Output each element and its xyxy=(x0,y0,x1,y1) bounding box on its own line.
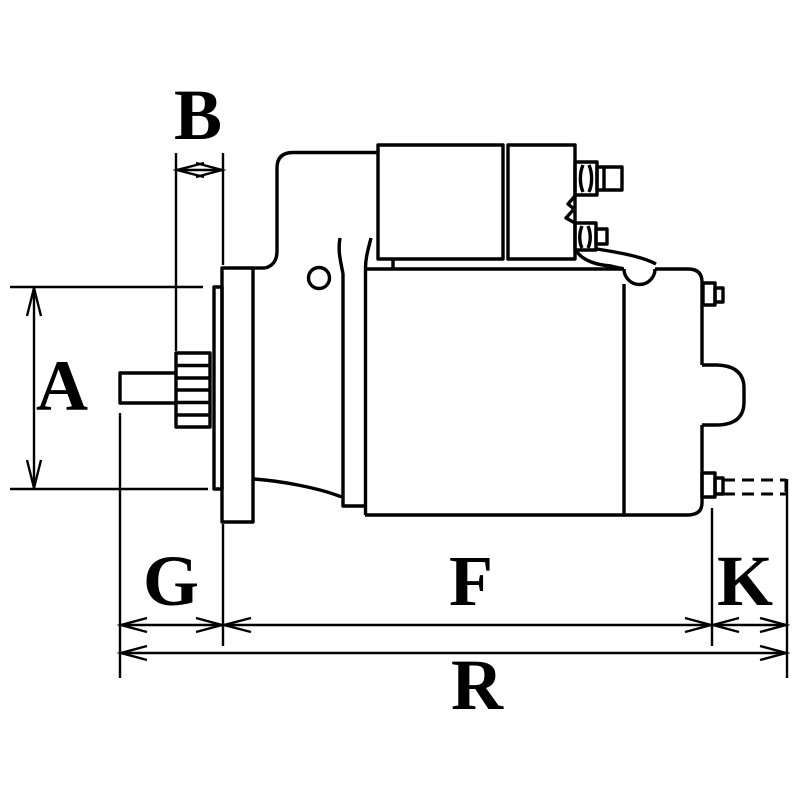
dimension-label-A: A xyxy=(36,346,88,426)
solenoid xyxy=(378,145,575,269)
starter-motor-dimension-diagram: A B G xyxy=(0,0,800,800)
starter-motor-outline xyxy=(120,145,786,522)
rear-bearing-boss xyxy=(702,365,744,425)
field-strap xyxy=(576,249,656,269)
battery-terminal xyxy=(575,162,622,195)
dimension-label-R: R xyxy=(451,645,504,725)
solenoid-cap xyxy=(508,145,575,259)
terminal-insulator-curves xyxy=(580,226,591,248)
drive-housing-bottom-profile xyxy=(254,479,365,506)
drive-housing-top-profile xyxy=(265,153,378,269)
pinion-teeth-lines xyxy=(176,366,210,416)
dimension-annotations: A B G xyxy=(10,75,787,725)
terminal-insulator-curves xyxy=(580,165,591,192)
dimension-B-lines xyxy=(176,153,223,351)
yoke-and-end-cap xyxy=(365,238,744,515)
through-bolt-upper xyxy=(703,283,723,305)
strap-notch xyxy=(624,269,655,284)
motor-terminal xyxy=(575,223,607,250)
end-cap-right-edge xyxy=(687,282,702,515)
dimension-label-F: F xyxy=(449,541,493,621)
solenoid-body xyxy=(378,145,503,259)
dimension-chain-bottom: G F K R xyxy=(120,413,787,725)
technical-drawing-page: A B G xyxy=(0,0,800,800)
housing-hole xyxy=(309,268,330,289)
housing-yoke-joint-line xyxy=(339,238,343,497)
bolt-projection-dashed-lines xyxy=(723,480,786,494)
mounting-flange xyxy=(222,268,265,522)
armature-shaft xyxy=(120,373,176,403)
through-bolt-lower xyxy=(702,473,723,497)
yoke-left-edge xyxy=(366,238,372,515)
dimension-label-B: B xyxy=(174,75,222,155)
dimension-label-K: K xyxy=(717,541,773,621)
body-top-right-corner xyxy=(655,269,702,282)
pinion-gear xyxy=(176,353,210,427)
dimension-A: A xyxy=(10,287,208,489)
dimension-label-G: G xyxy=(143,541,199,621)
